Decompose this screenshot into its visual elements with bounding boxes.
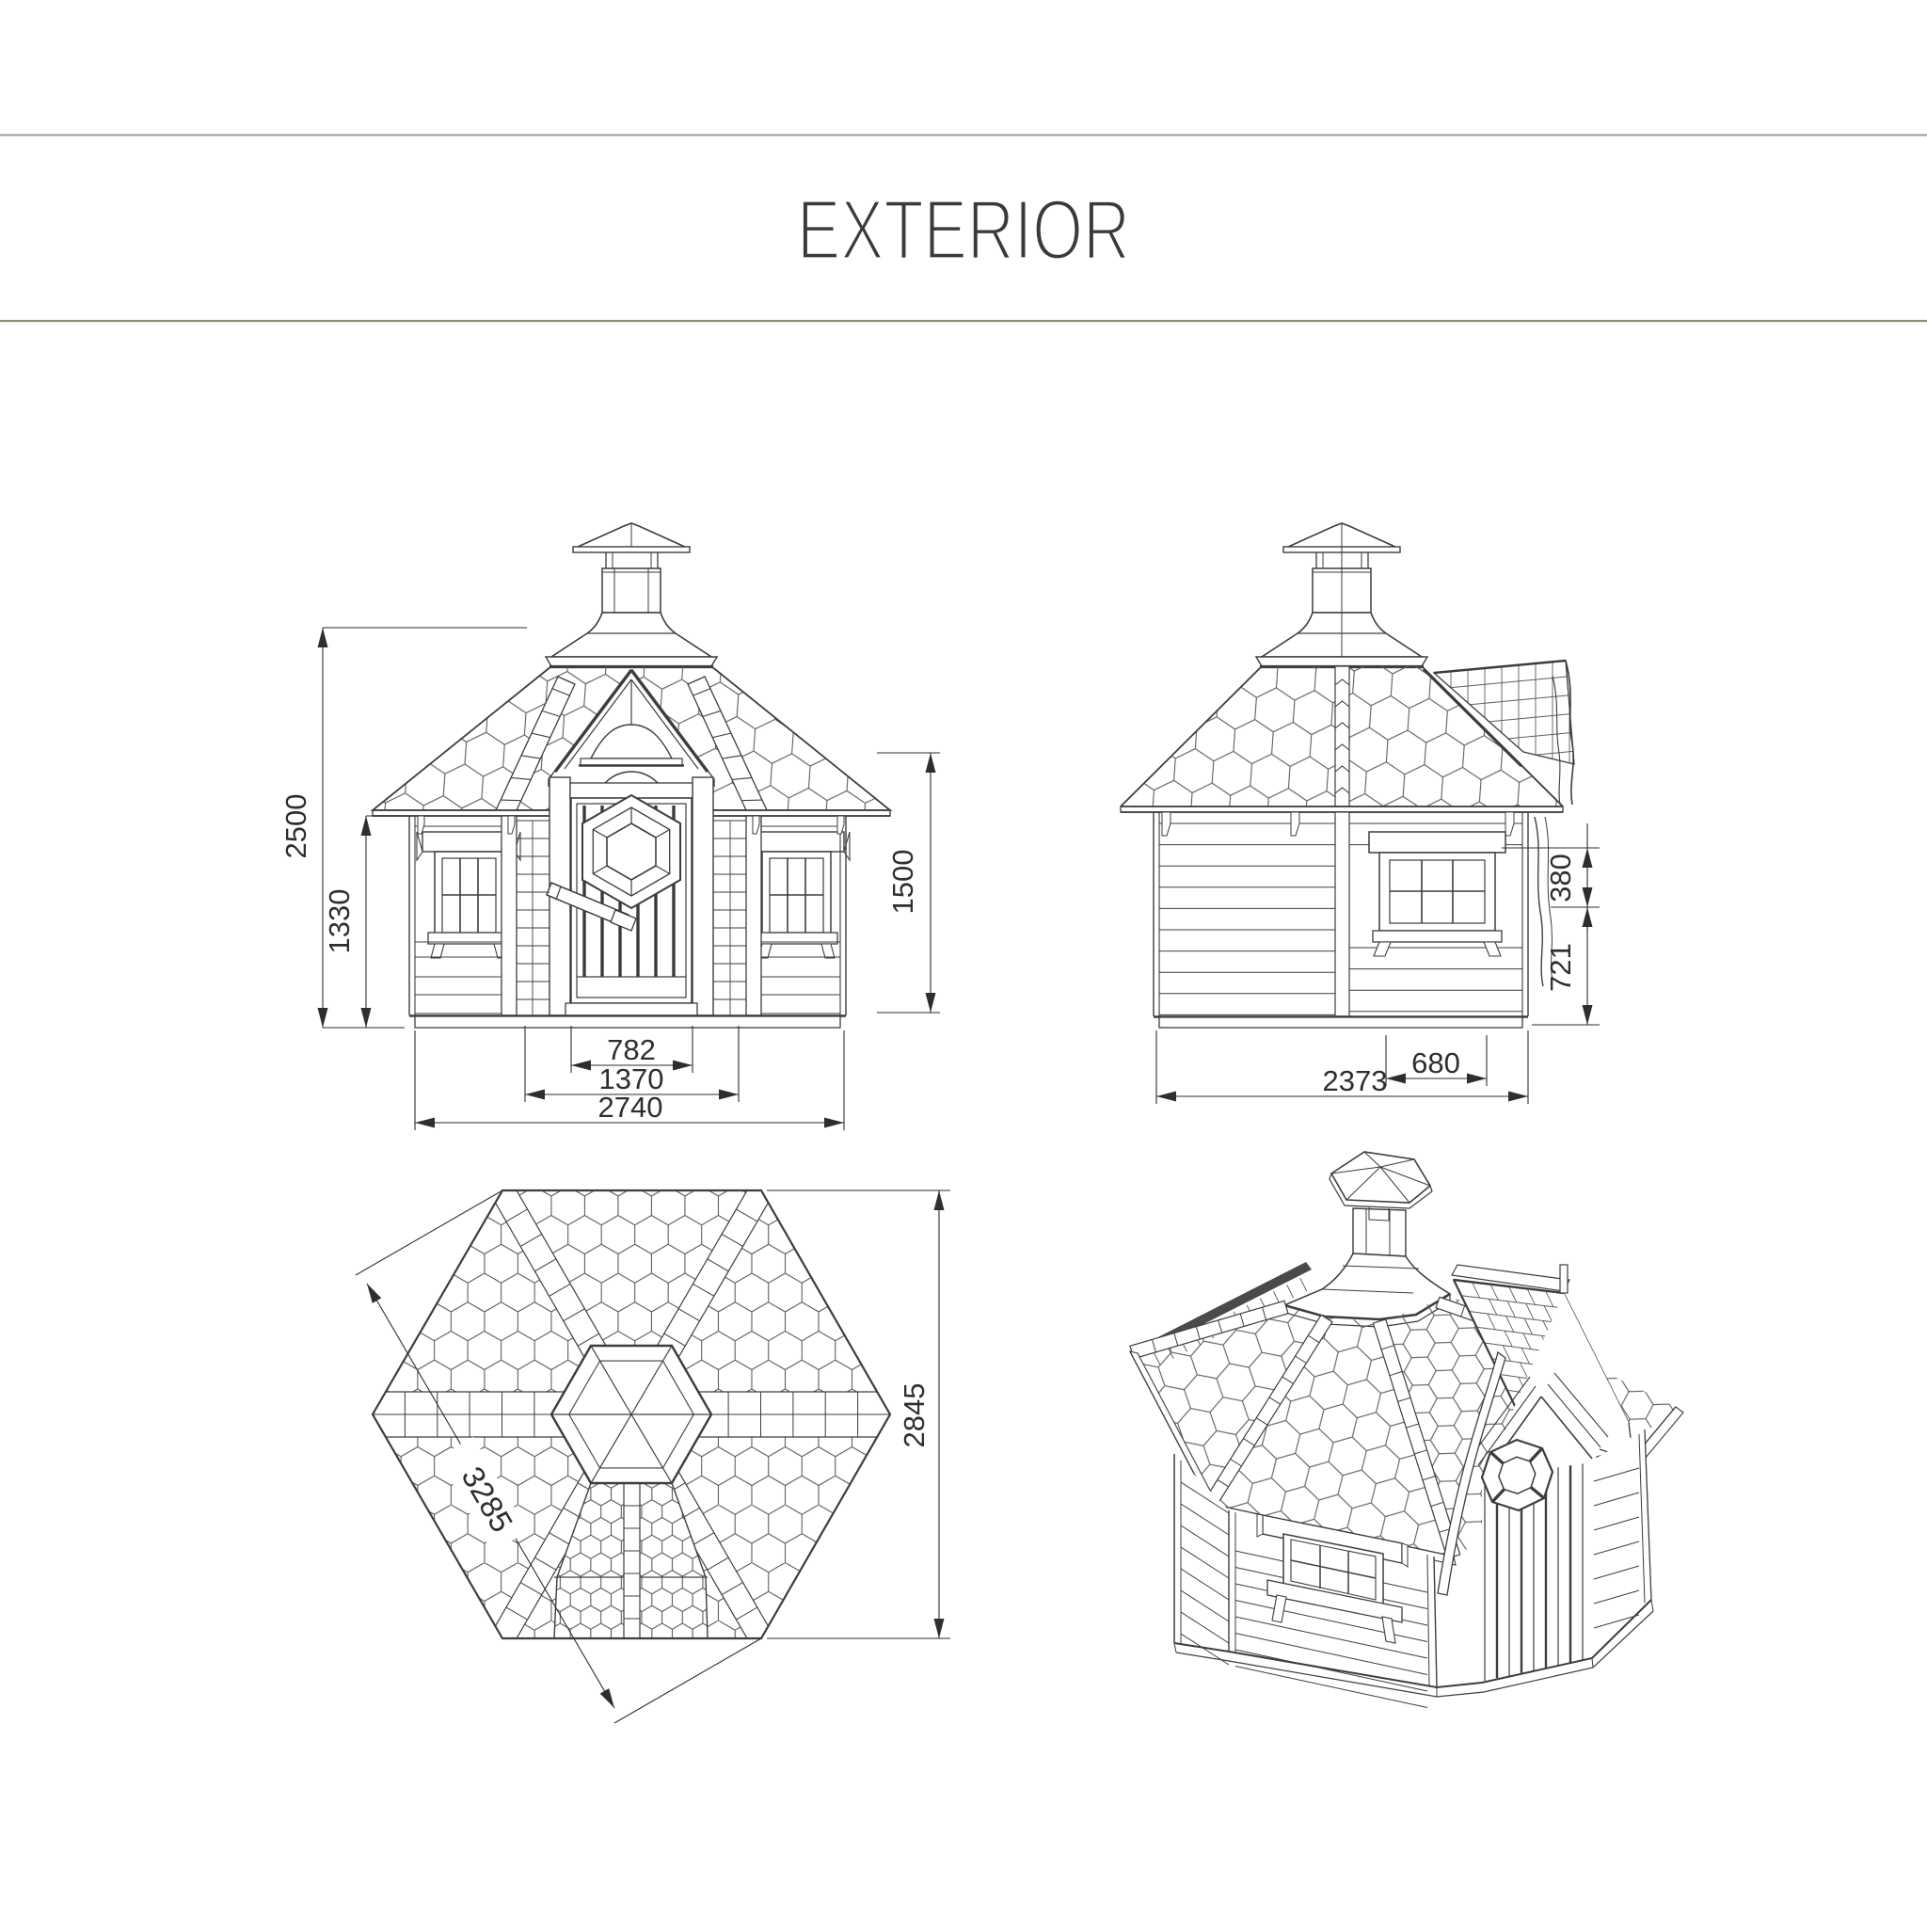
svg-text:1500: 1500 [886, 850, 919, 915]
svg-text:2740: 2740 [598, 1091, 663, 1124]
svg-text:1330: 1330 [323, 889, 356, 954]
svg-text:2845: 2845 [898, 1383, 931, 1448]
svg-text:2500: 2500 [279, 794, 312, 859]
svg-text:2373: 2373 [1323, 1064, 1388, 1097]
svg-text:EXTERIOR: EXTERIOR [797, 184, 1130, 278]
svg-text:721: 721 [1544, 943, 1577, 992]
svg-text:782: 782 [607, 1033, 656, 1066]
svg-text:680: 680 [1411, 1046, 1460, 1079]
svg-text:380: 380 [1544, 854, 1577, 902]
